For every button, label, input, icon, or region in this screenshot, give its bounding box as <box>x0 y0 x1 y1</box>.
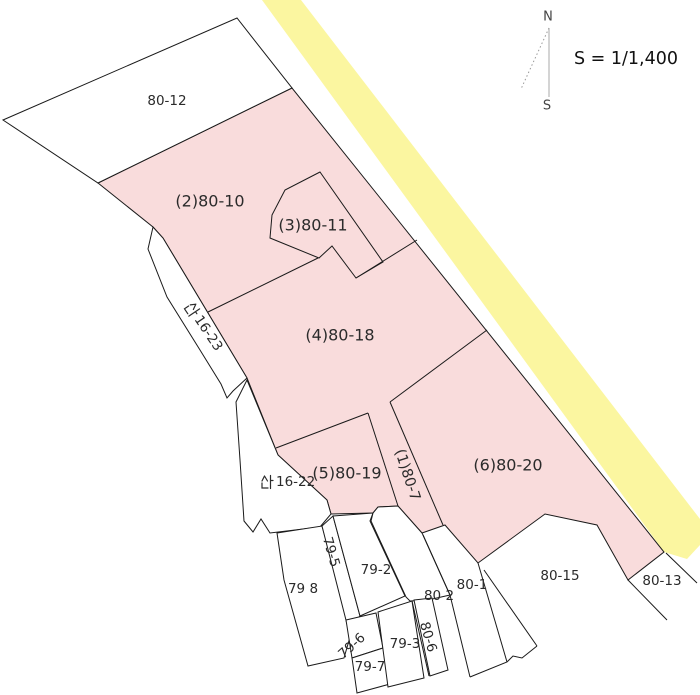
compass-declination-line <box>521 28 549 89</box>
compass-south-label: S <box>543 99 551 114</box>
parcel-label-80-11: (3)80-11 <box>278 216 347 235</box>
compass-north-label: N <box>543 10 553 25</box>
parcel-label-san16-22: 16-22 <box>262 474 315 490</box>
svg-text:16-22: 16-22 <box>276 474 315 490</box>
map-scale-label: S = 1/1,400 <box>574 49 678 69</box>
parcel-label-80-19: (5)80-19 <box>312 464 381 483</box>
parcel-label-79-3: 79-3 <box>390 636 421 652</box>
parcel-label-80-1: 80-1 <box>457 577 488 593</box>
parcel-label-80-12: 80-12 <box>147 93 186 109</box>
parcel-label-79-7: 79-7 <box>355 659 386 675</box>
parcel-label-80-13: 80-13 <box>642 573 681 589</box>
cadastral-map: 80-12 (2)80-10 (3)80-11 (4)80-18 (5)80-1… <box>0 0 700 695</box>
parcel-label-80-15: 80-15 <box>540 568 579 584</box>
parcel-label-80-20: (6)80-20 <box>473 456 542 475</box>
parcel-label-80-18: (4)80-18 <box>305 326 374 345</box>
parcel-label-79-2: 79-2 <box>361 562 392 578</box>
parcel-80-15-left-edge <box>484 570 537 646</box>
parcel-label-79-8: 79 8 <box>288 581 318 597</box>
compass: N S <box>521 10 553 114</box>
parcel-label-80-2: 80 2 <box>424 588 454 604</box>
parcel-label-80-10: (2)80-10 <box>175 192 244 211</box>
map-canvas: 80-12 (2)80-10 (3)80-11 (4)80-18 (5)80-1… <box>0 0 700 695</box>
